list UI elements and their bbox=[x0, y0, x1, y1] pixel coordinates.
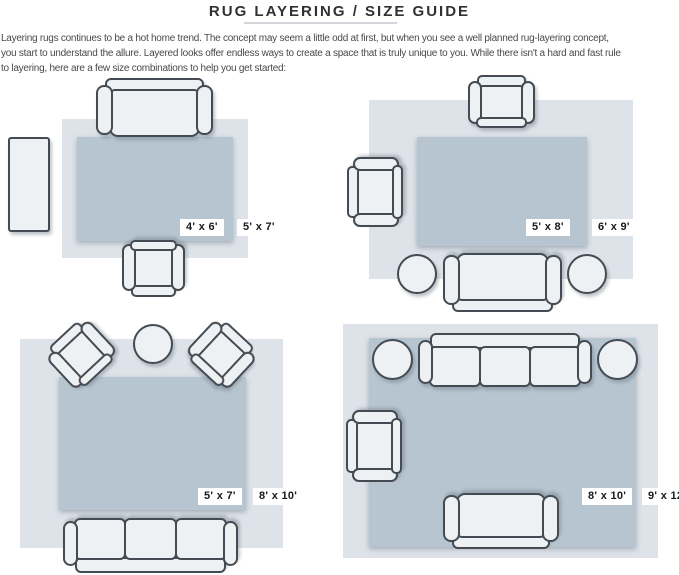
armchair bbox=[347, 157, 403, 227]
chair-front-cushion bbox=[476, 117, 527, 128]
rug-layering-size-guide: RUG LAYERING / SIZE GUIDE Layering rugs … bbox=[0, 0, 679, 575]
sofa-arm-left bbox=[443, 255, 460, 305]
armchair bbox=[468, 75, 535, 128]
loveseat-sofa bbox=[443, 253, 562, 312]
sofa-cushion bbox=[429, 346, 481, 387]
chair-front-cushion bbox=[391, 418, 402, 474]
sofa-arm-left bbox=[443, 495, 460, 542]
intro-paragraph: Layering rugs continues to be a hot home… bbox=[1, 31, 621, 76]
outer-rug-size-label: 5' x 7' bbox=[237, 219, 281, 236]
round-side-table bbox=[597, 339, 638, 380]
sofa-cushion bbox=[175, 518, 227, 560]
three-seat-sofa bbox=[418, 333, 592, 387]
sofa-cushion bbox=[124, 518, 176, 560]
sofa-arm-left bbox=[63, 521, 78, 566]
console-table bbox=[8, 137, 50, 232]
chair-front-cushion bbox=[130, 240, 177, 251]
loveseat-sofa bbox=[443, 493, 559, 549]
sofa-arm-right bbox=[577, 340, 592, 384]
three-seat-sofa bbox=[63, 518, 238, 573]
chair-seat bbox=[133, 247, 174, 287]
sofa-arm-right bbox=[223, 521, 238, 566]
inner-rug-size-label: 5' x 7' bbox=[198, 488, 242, 505]
sofa-arm-right bbox=[196, 85, 213, 135]
inner-rug-size-label: 5' x 8' bbox=[526, 219, 570, 236]
inner-rug-size-label: 8' x 10' bbox=[582, 488, 632, 505]
sofa-cushions bbox=[429, 346, 581, 387]
round-side-table bbox=[133, 324, 173, 364]
armchair bbox=[346, 410, 402, 482]
intro-line-2: you start to understand the allure. Laye… bbox=[1, 46, 621, 61]
sofa-arm-right bbox=[545, 255, 562, 305]
chair-front-cushion bbox=[392, 165, 403, 219]
chair-seat bbox=[356, 421, 395, 471]
outer-rug-size-label: 9' x 12' bbox=[642, 488, 679, 505]
title-divider bbox=[244, 22, 397, 24]
intro-line-3: to layering, here are a few size combina… bbox=[1, 61, 621, 76]
outer-rug-size-label: 6' x 9' bbox=[592, 219, 636, 236]
round-side-table bbox=[372, 339, 413, 380]
sofa-arm-right bbox=[542, 495, 559, 542]
sofa-seat bbox=[456, 253, 549, 301]
chair-arm-right bbox=[171, 244, 185, 291]
sofa-arm-left bbox=[418, 340, 433, 384]
page-title: RUG LAYERING / SIZE GUIDE bbox=[0, 3, 679, 20]
sofa-seat bbox=[456, 493, 546, 538]
intro-line-1: Layering rugs continues to be a hot home… bbox=[1, 31, 621, 46]
sofa-seat bbox=[109, 89, 200, 137]
loveseat-sofa bbox=[96, 78, 213, 137]
chair-seat bbox=[357, 168, 396, 216]
sofa-arm-left bbox=[96, 85, 113, 135]
armchair bbox=[122, 240, 185, 297]
outer-rug-size-label: 8' x 10' bbox=[253, 488, 303, 505]
sofa-cushion bbox=[529, 346, 581, 387]
sofa-cushion bbox=[479, 346, 531, 387]
round-side-table bbox=[397, 254, 437, 294]
chair-arm-left bbox=[122, 244, 136, 291]
chair-seat bbox=[479, 85, 524, 121]
sofa-cushion bbox=[74, 518, 126, 560]
sofa-cushions bbox=[74, 518, 227, 560]
round-side-table bbox=[567, 254, 607, 294]
inner-rug-size-label: 4' x 6' bbox=[180, 219, 224, 236]
